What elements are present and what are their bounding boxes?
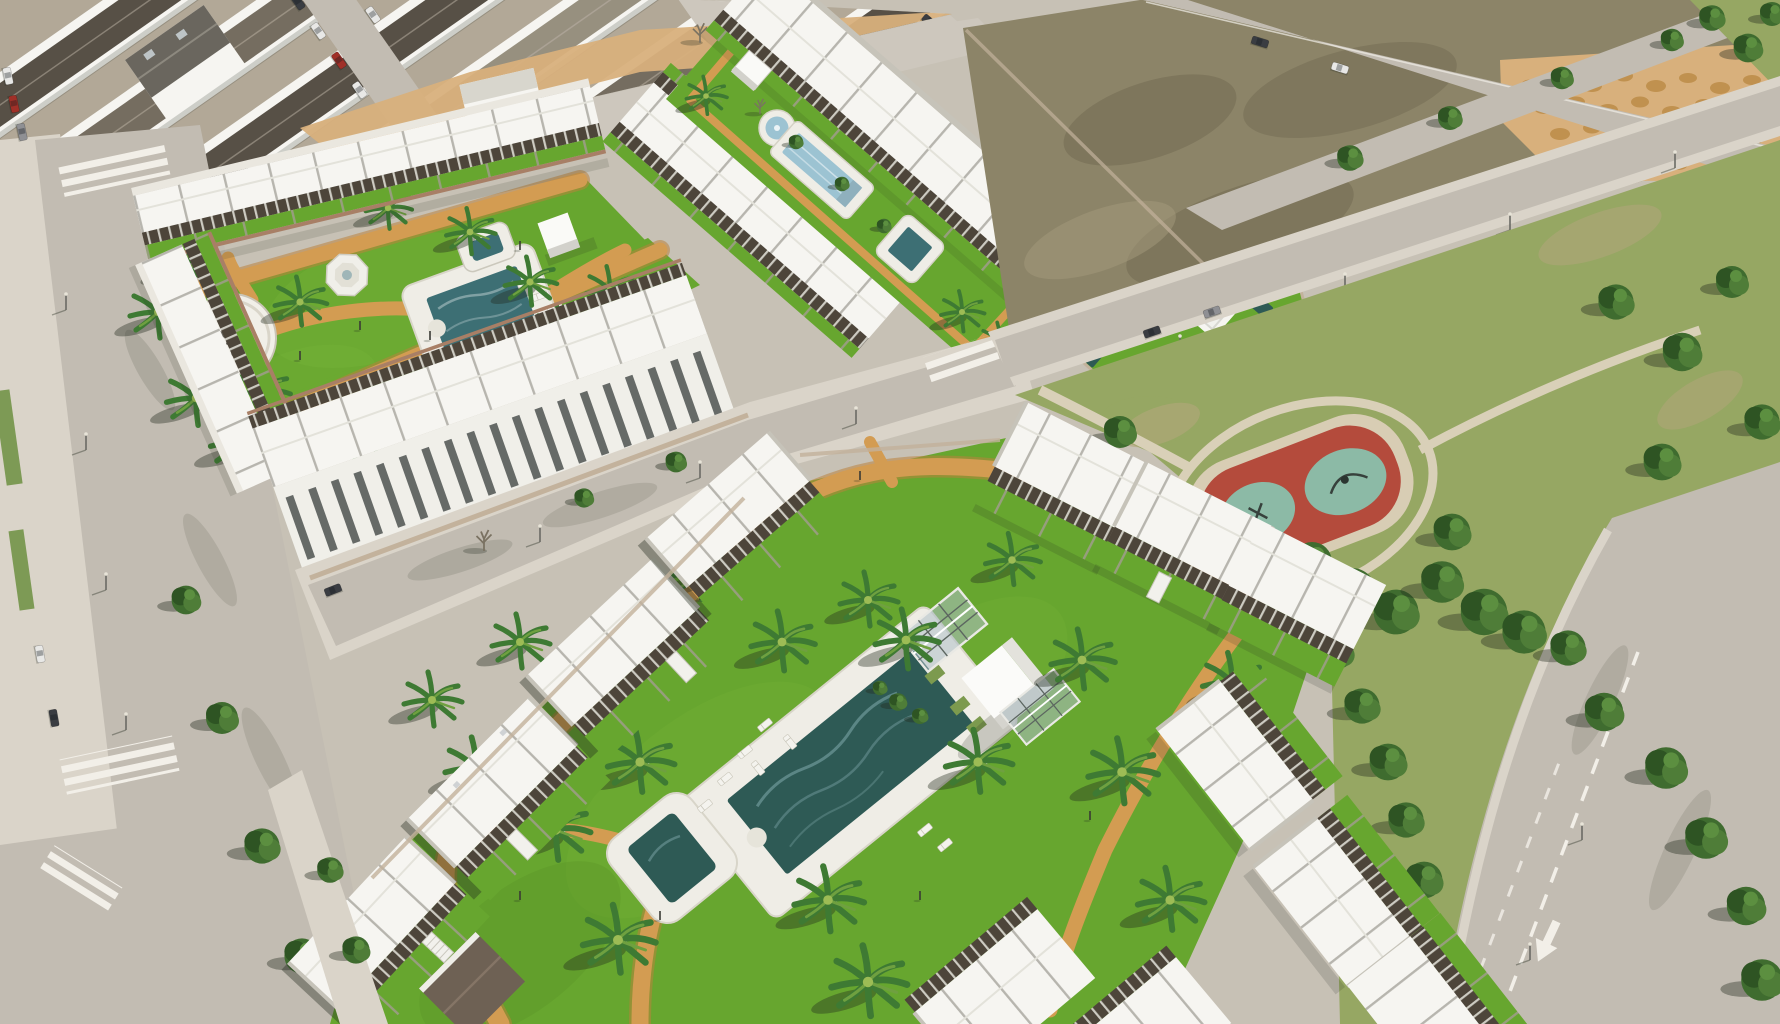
aerial-scene	[0, 0, 1780, 1024]
aerial-render-image: Aerial drone-style 3D render of a new-bu…	[0, 0, 1780, 1024]
